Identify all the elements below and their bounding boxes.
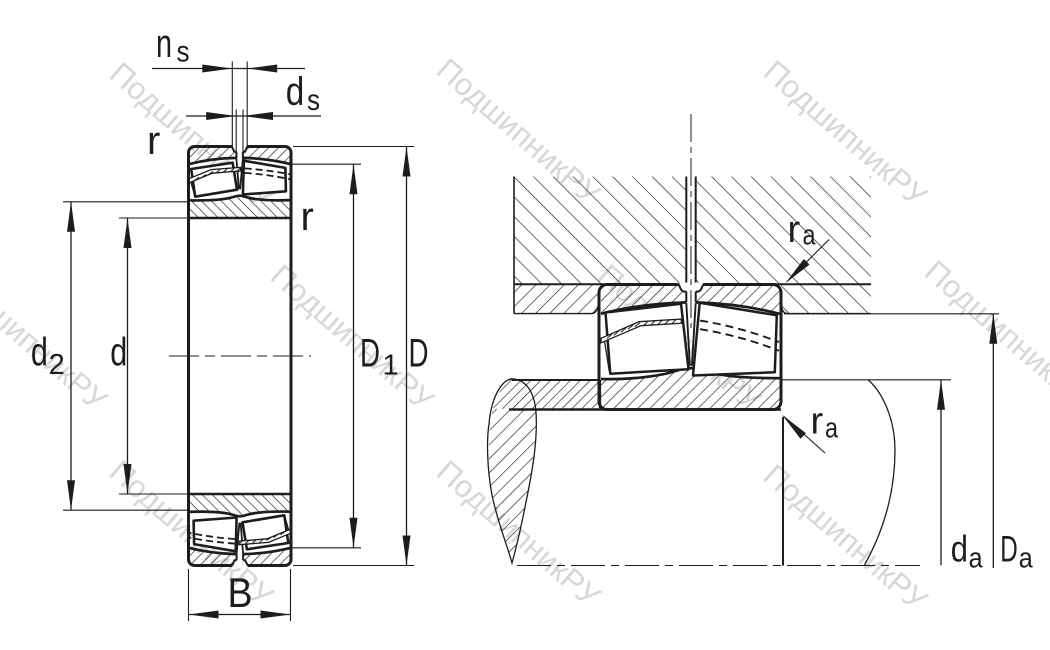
svg-text:d: d <box>31 331 48 375</box>
svg-text:a: a <box>969 543 984 575</box>
svg-text:s: s <box>307 84 320 117</box>
svg-text:n: n <box>156 22 172 66</box>
svg-text:a: a <box>803 220 817 252</box>
svg-text:D: D <box>409 332 429 376</box>
svg-text:D: D <box>1000 529 1018 570</box>
svg-text:d: d <box>951 529 968 570</box>
svg-text:ПодшипникРУ: ПодшипникРУ <box>0 257 114 417</box>
svg-text:r: r <box>301 195 314 239</box>
svg-text:B: B <box>228 569 253 616</box>
svg-text:a: a <box>1019 543 1034 575</box>
svg-text:s: s <box>177 36 190 69</box>
svg-text:D: D <box>360 332 380 376</box>
svg-text:r: r <box>788 209 801 251</box>
svg-text:r: r <box>147 119 160 163</box>
svg-text:r: r <box>811 401 824 443</box>
svg-text:2: 2 <box>49 349 65 381</box>
svg-text:ПодшипникРУ: ПодшипникРУ <box>918 253 1050 413</box>
svg-text:d: d <box>110 331 127 375</box>
svg-text:a: a <box>825 413 839 445</box>
svg-text:1: 1 <box>383 350 399 382</box>
svg-text:d: d <box>286 70 305 114</box>
